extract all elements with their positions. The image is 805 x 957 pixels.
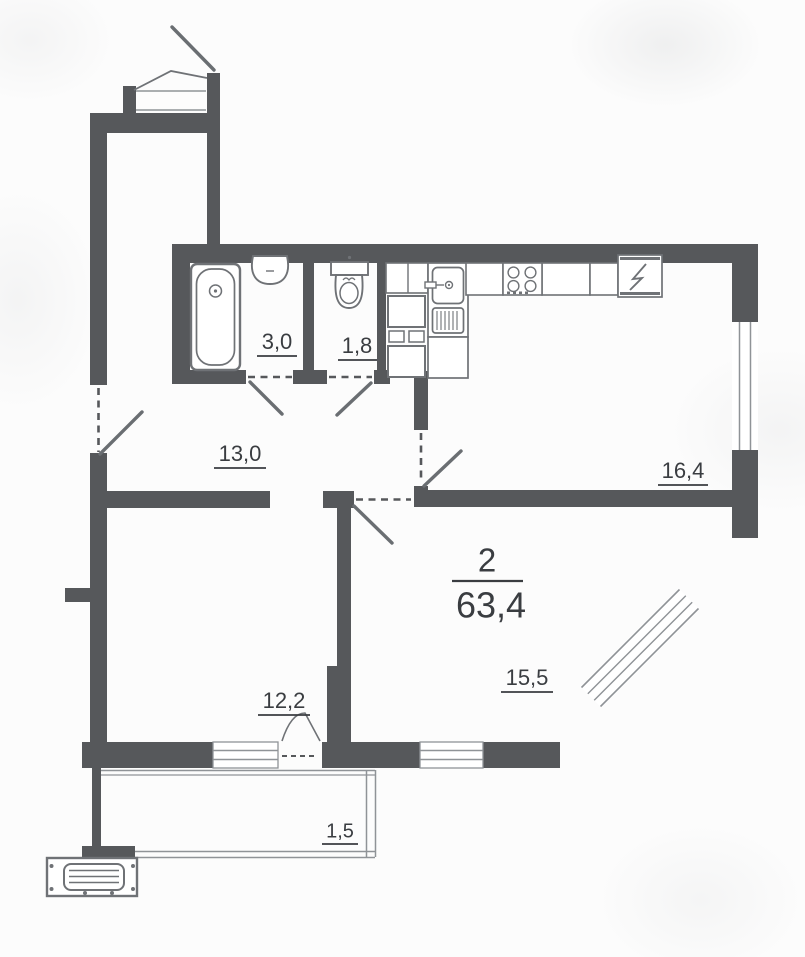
window-bay-pane — [588, 596, 686, 694]
window-living — [420, 742, 483, 768]
kitchen-cabinet — [428, 337, 468, 378]
area-label-bedroom: 12,2 — [263, 688, 306, 713]
wall-bath-toilet-divider — [303, 263, 314, 370]
rooms-count: 2 — [478, 542, 496, 579]
floor-plan-svg: 3,0 1,8 13,0 16,4 12,2 15,5 1,5 2 63,4 — [0, 0, 805, 957]
washbasin-icon — [252, 256, 288, 284]
walls — [65, 73, 758, 860]
wall-right-upper — [732, 244, 758, 322]
kitchen-sink-icon — [425, 263, 468, 337]
toilet-icon — [331, 256, 368, 308]
wall-bathroom-bottom-b — [293, 370, 327, 384]
window-bay-diagonal — [582, 590, 699, 707]
radiator-icon — [47, 858, 137, 896]
floor-plan: 3,0 1,8 13,0 16,4 12,2 15,5 1,5 2 63,4 — [0, 0, 805, 957]
wall-room-divider-lower — [327, 666, 351, 746]
total-area: 63,4 — [456, 585, 526, 626]
wall-entry-right — [207, 73, 220, 244]
bathtub-icon — [191, 264, 240, 370]
balcony-door-leaf — [282, 713, 320, 741]
wall-right-lower — [732, 450, 758, 538]
wall-kitchen-bottom — [414, 490, 732, 507]
area-label-living: 15,5 — [506, 665, 549, 690]
wall-left-upper — [90, 113, 107, 385]
door-swing-bathroom — [250, 382, 282, 414]
door-swing-bedroom — [100, 412, 142, 454]
wall-balcony-left — [92, 768, 101, 848]
window-bedroom — [213, 742, 278, 768]
area-label-kitchen: 16,4 — [662, 458, 705, 483]
doors — [99, 27, 462, 756]
area-label-bathroom: 3,0 — [262, 329, 293, 354]
wall-entry-top — [90, 113, 207, 133]
wall-bottom-right — [483, 742, 560, 768]
oven-stack-icon — [386, 263, 428, 377]
refrigerator-icon — [618, 255, 662, 297]
stove-icon — [503, 263, 542, 295]
area-label-hallway: 13,0 — [219, 441, 262, 466]
window-bay-fill — [591, 599, 689, 697]
door-swing-toilet — [337, 383, 371, 415]
area-label-balcony: 1,5 — [326, 820, 354, 842]
wall-bathroom-left — [172, 244, 190, 384]
window-bay-pane — [594, 602, 692, 700]
wall-left-stub — [65, 588, 90, 602]
wall-t-cap — [323, 491, 354, 508]
wall-room-divider-upper — [337, 508, 351, 672]
plan-title: 2 63,4 — [452, 542, 526, 626]
window-kitchen — [732, 322, 758, 450]
area-label-toilet: 1,8 — [342, 333, 373, 358]
entrance-door-leaf — [134, 71, 207, 90]
wall-toilet-right — [377, 263, 386, 373]
wall-bathroom-bottom-a — [172, 370, 246, 384]
door-swing-kitchen — [424, 451, 461, 486]
door-swing-living — [354, 506, 392, 543]
wall-kitchen-west — [414, 371, 428, 430]
entrance-door-swing — [172, 27, 214, 70]
wall-hall-bottom — [90, 491, 270, 508]
